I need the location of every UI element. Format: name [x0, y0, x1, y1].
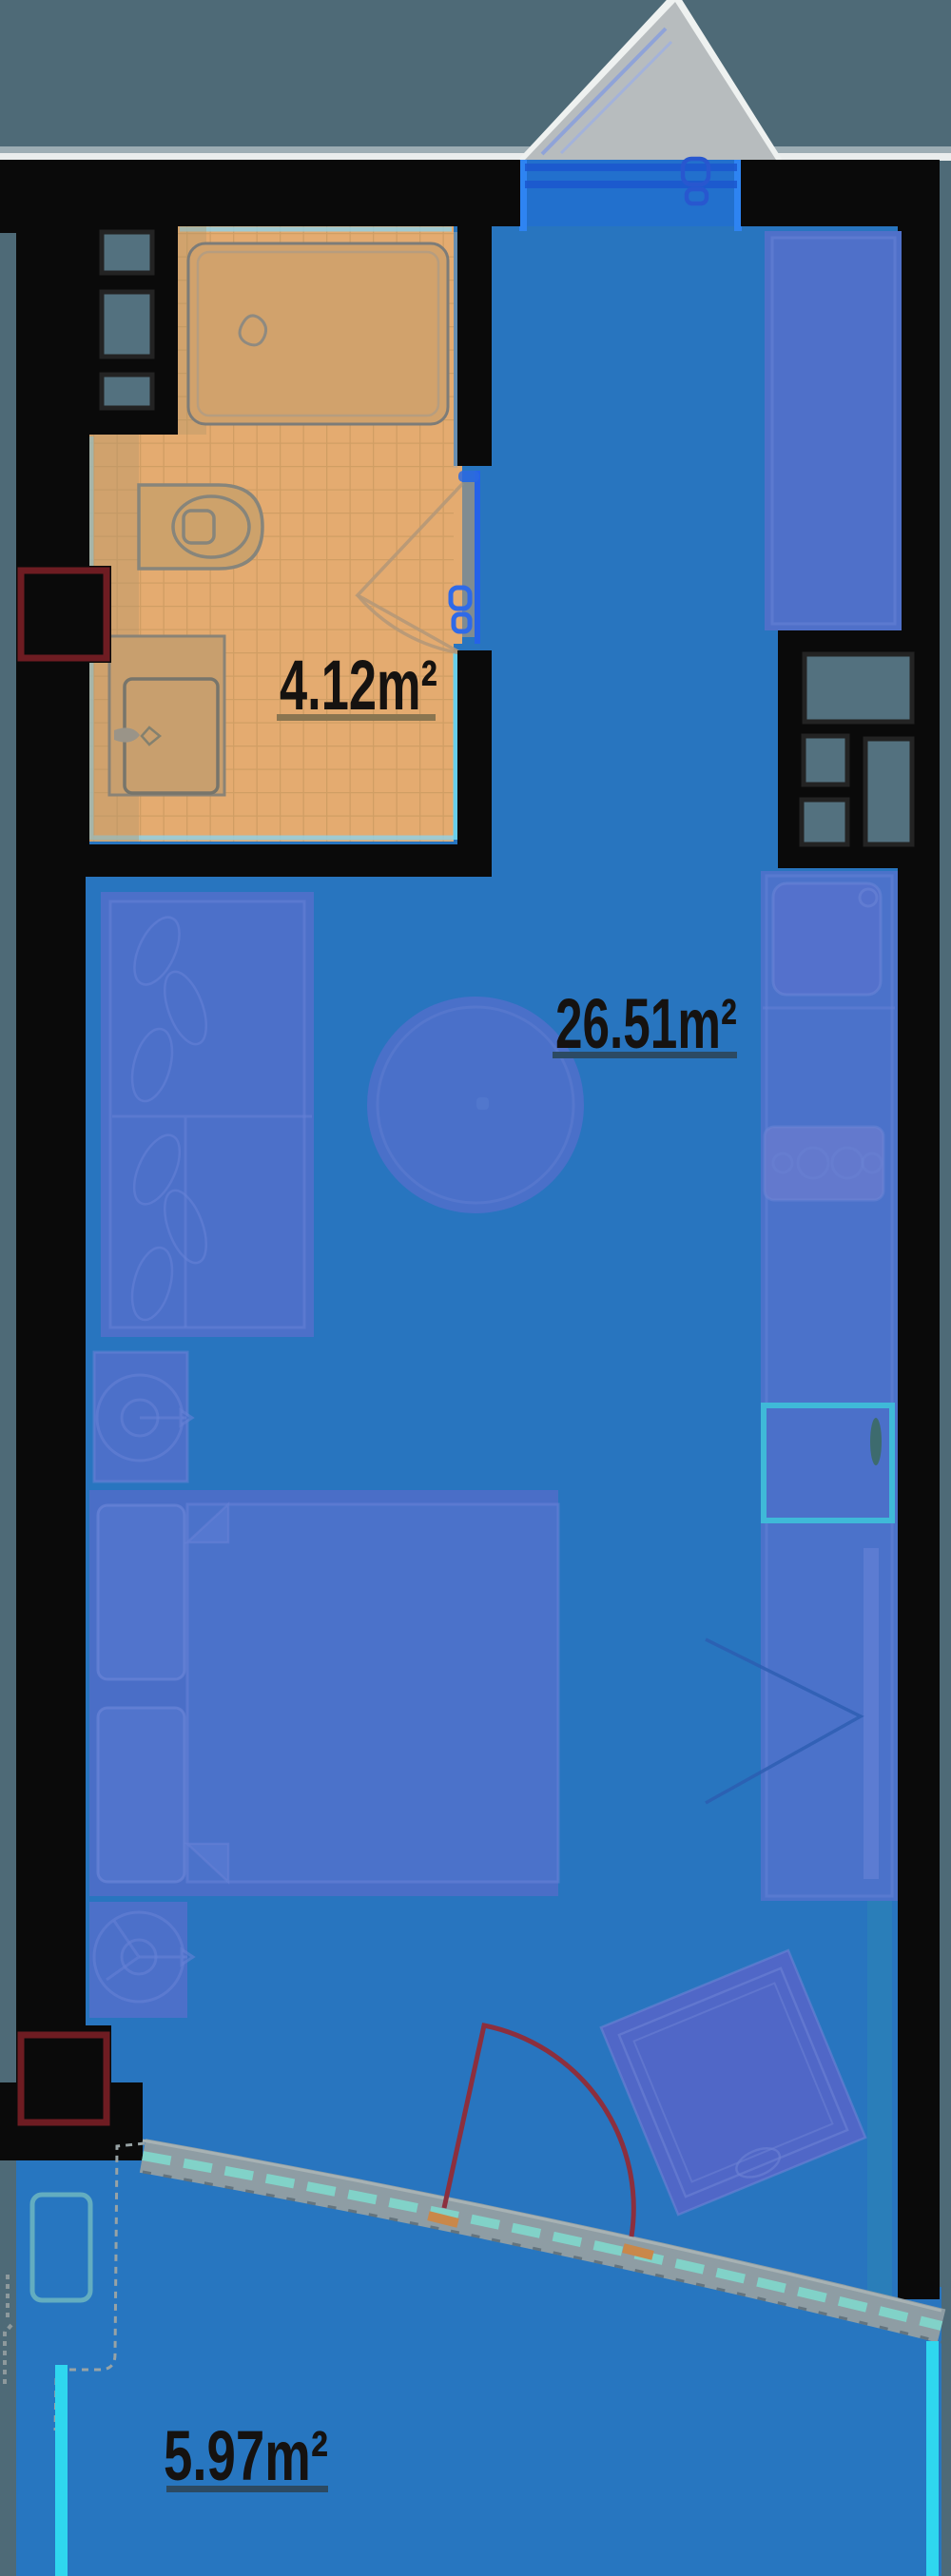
- svg-text:26.51m²: 26.51m²: [555, 984, 737, 1063]
- svg-text:5.97m²: 5.97m²: [164, 2416, 328, 2495]
- svg-text:4.12m²: 4.12m²: [280, 646, 437, 725]
